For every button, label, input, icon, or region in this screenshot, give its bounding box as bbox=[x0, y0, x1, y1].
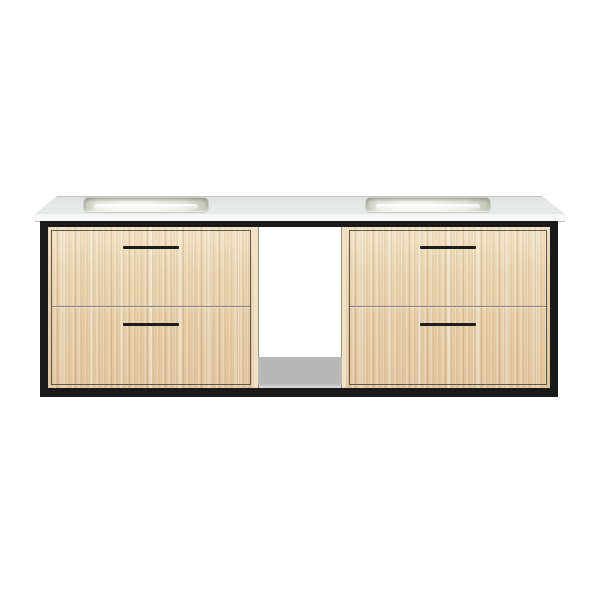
frame-bottom-rail bbox=[40, 388, 558, 397]
right-top-drawer-handle bbox=[420, 246, 476, 249]
left-top-drawer bbox=[48, 227, 254, 307]
left-top-drawer-handle bbox=[123, 246, 179, 249]
countertop-surface bbox=[35, 196, 565, 214]
left-drawer-unit bbox=[48, 227, 254, 388]
right-top-drawer bbox=[346, 227, 550, 307]
center-cubby bbox=[254, 227, 346, 388]
left-bottom-drawer-handle bbox=[123, 323, 179, 326]
sink-highlight bbox=[94, 204, 198, 210]
frame-left-post bbox=[40, 221, 48, 397]
right-sink-basin bbox=[366, 198, 490, 212]
frame-right-post bbox=[550, 221, 558, 397]
cubby-shelf-floor bbox=[258, 357, 342, 388]
left-sink-basin bbox=[84, 198, 208, 212]
right-bottom-drawer bbox=[346, 307, 550, 388]
product-image bbox=[0, 0, 600, 600]
right-drawer-unit bbox=[346, 227, 550, 388]
right-bottom-drawer-handle bbox=[420, 323, 476, 326]
left-bottom-drawer bbox=[48, 307, 254, 388]
sink-highlight bbox=[376, 204, 480, 210]
